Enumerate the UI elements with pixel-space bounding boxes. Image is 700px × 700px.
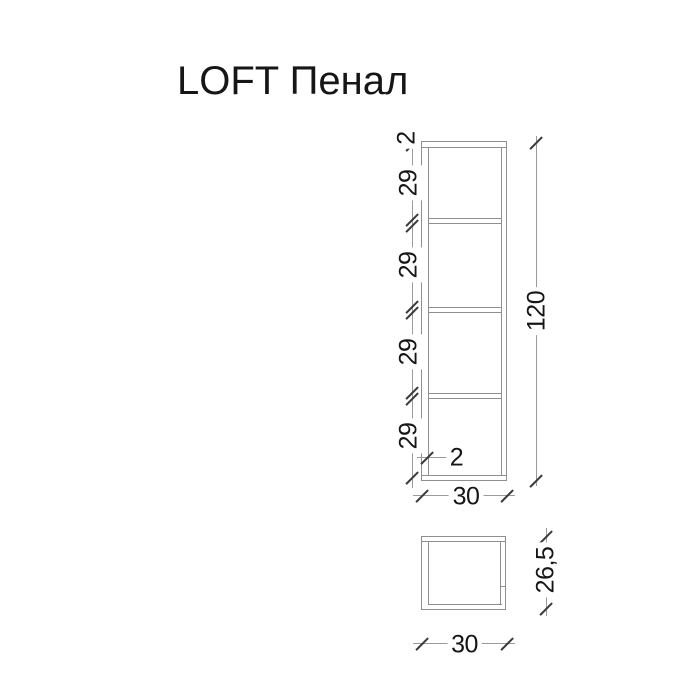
shelf-line-2 xyxy=(428,307,501,313)
section-height-label-4: 29 xyxy=(396,419,423,454)
side-back-notch-line xyxy=(500,586,506,587)
front-width-label: 30 xyxy=(449,483,484,510)
section-height-label-3: 29 xyxy=(396,335,423,370)
side-width-label: 30 xyxy=(447,631,482,658)
side-inner-right-line xyxy=(500,541,501,604)
drawing-title: LOFT Пенал xyxy=(177,61,408,101)
front-bottom-panel-line xyxy=(421,475,507,476)
section-height-label-2: 29 xyxy=(396,248,423,283)
front-top-panel-line xyxy=(421,147,507,148)
side-inner-left-line xyxy=(428,541,429,604)
section-height-label-1: 29 xyxy=(396,166,423,201)
technical-drawing-canvas: LOFT Пенал 2 29 29 29 29 120 xyxy=(0,0,700,700)
side-top-panel-line xyxy=(421,541,506,542)
top-panel-thickness-label: 2 xyxy=(394,127,421,148)
side-inner-bottom-line xyxy=(428,604,502,605)
depth-label: 26,5 xyxy=(533,543,560,598)
wall-thickness-label: 2 xyxy=(446,445,467,472)
shelf-line-1 xyxy=(428,218,501,224)
total-height-label: 120 xyxy=(524,287,551,335)
shelf-line-3 xyxy=(428,393,501,399)
wall-thickness-leader-line xyxy=(417,457,447,458)
side-outer-outline xyxy=(421,536,506,610)
